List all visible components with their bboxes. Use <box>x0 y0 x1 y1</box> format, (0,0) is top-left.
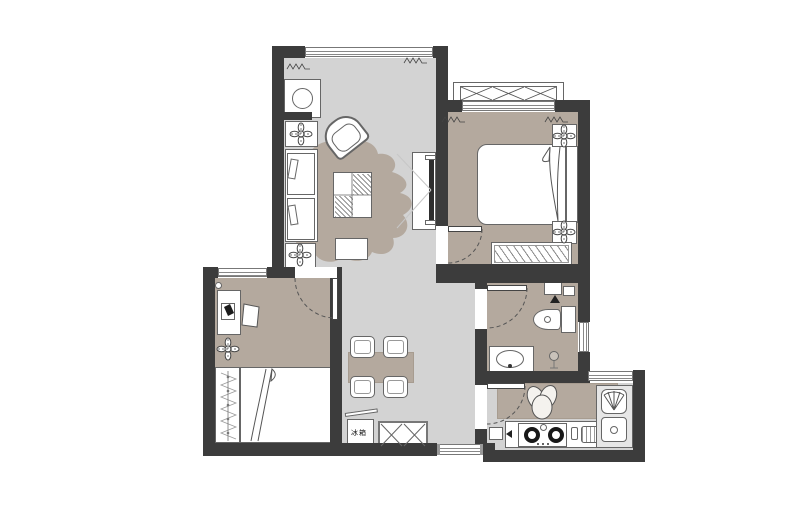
kitchen-switch-box <box>489 427 503 440</box>
side-tray <box>335 238 368 260</box>
kitchen-window <box>588 371 633 381</box>
wall-right-upper <box>578 100 590 285</box>
stove-burner-right <box>548 427 564 443</box>
master-door-leaf <box>448 226 482 232</box>
headboard <box>566 146 578 223</box>
stove-burner-left <box>524 427 540 443</box>
dining-chair-1 <box>350 336 375 358</box>
bathroom-door-gap <box>475 289 487 329</box>
stove-pilot <box>540 424 547 431</box>
toilet-tank <box>561 306 576 333</box>
second-wardrobe <box>215 367 240 443</box>
entry-post-left <box>437 444 440 455</box>
wall-bath-right-upper <box>578 285 590 322</box>
wall-second-top-b <box>267 267 295 278</box>
chair-seat <box>387 340 404 354</box>
toilet-flush <box>544 316 551 323</box>
wall-bottom-main <box>203 443 437 456</box>
wall-living-left <box>272 46 284 268</box>
bay-window-inner <box>460 86 557 101</box>
kitchen-door-gap <box>475 385 487 429</box>
wall-master-top-left <box>448 100 462 112</box>
bathroom-door-leaf <box>487 285 527 291</box>
master-bed <box>477 144 566 225</box>
washing-machine-drum <box>292 88 313 109</box>
coffee-table-hatch-bl <box>335 196 353 217</box>
living-window <box>305 47 433 57</box>
floor-plan-canvas: 冰箱 <box>0 0 800 511</box>
bath-shelf-2 <box>563 286 575 296</box>
wall-east-upper <box>436 46 448 226</box>
tv-bracket-top <box>425 155 436 160</box>
wardrobe-hatch <box>494 245 569 263</box>
wall-bath-bottom <box>475 371 590 383</box>
entry-opening <box>437 444 483 455</box>
second-door-leaf <box>332 278 338 320</box>
dining-chair-3 <box>350 376 375 398</box>
second-bed <box>240 367 332 443</box>
coffee-table <box>333 172 372 218</box>
desk-lamp <box>215 282 222 289</box>
master-wardrobe <box>491 242 572 266</box>
side-table-top <box>285 121 318 147</box>
nightstand-bottom <box>552 221 577 244</box>
coffee-table-hatch-tr <box>353 174 371 195</box>
vanity-faucet <box>508 364 512 368</box>
side-table-bottom <box>285 243 316 268</box>
chair-seat <box>354 340 371 354</box>
wall-kitchen-right <box>633 370 645 462</box>
fridge-label: 冰箱 <box>351 430 367 437</box>
wall-kitchen-bottom <box>483 450 645 462</box>
wall-second-left <box>203 267 215 456</box>
wall-second-top-a <box>203 267 218 278</box>
bath-shelf-1 <box>544 281 562 295</box>
tv-screen <box>429 158 434 222</box>
wall-master-bottom <box>436 264 590 283</box>
floor-drain <box>549 351 559 361</box>
sink-drain <box>610 426 618 434</box>
wall-kitchen-left-b <box>475 429 487 445</box>
sink-plant-cell <box>601 389 627 414</box>
bath-marker <box>550 295 560 303</box>
chair-seat <box>387 380 404 394</box>
second-bedroom-window <box>218 268 267 277</box>
kitchen-door-leaf <box>487 383 525 389</box>
bathroom-window <box>579 322 589 352</box>
dining-chair-2 <box>383 336 408 358</box>
dining-chair-4 <box>383 376 408 398</box>
chair-seat <box>354 380 371 394</box>
laptop <box>221 303 235 320</box>
wall-laundry-stub <box>272 112 312 120</box>
bottle <box>571 427 578 440</box>
second-door-gap <box>295 267 337 278</box>
tv-bracket-bottom <box>425 220 436 225</box>
master-door-gap <box>436 226 448 264</box>
kitchen-arrow <box>506 430 512 438</box>
entry-post-right <box>480 444 483 455</box>
nightstand-top <box>552 124 577 147</box>
master-window <box>462 101 555 111</box>
